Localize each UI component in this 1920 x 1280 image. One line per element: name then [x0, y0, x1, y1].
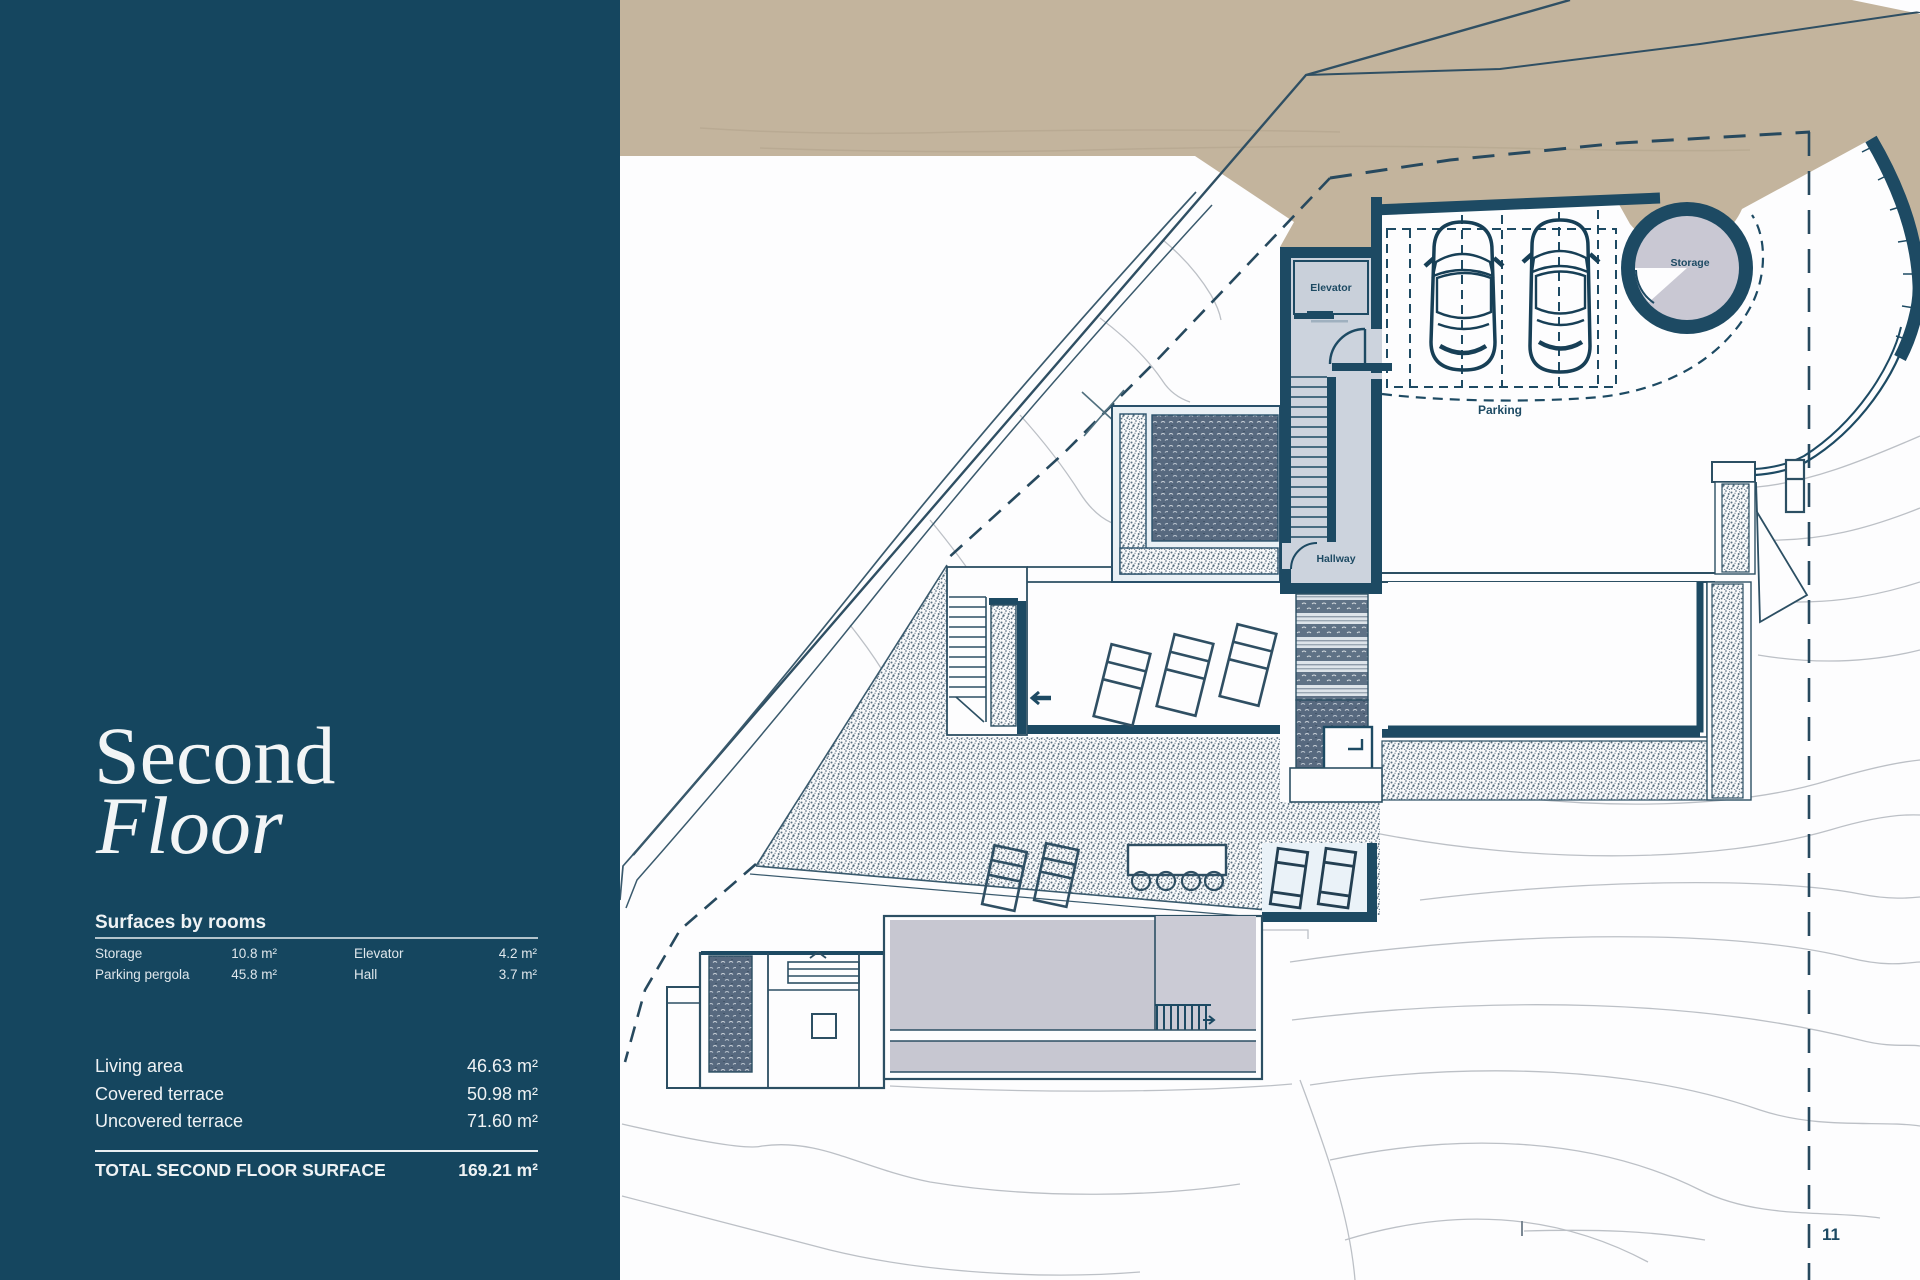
svg-text:11: 11	[1822, 1225, 1840, 1244]
svg-text:Parking: Parking	[1478, 403, 1522, 417]
svg-text:Elevator: Elevator	[354, 946, 404, 961]
svg-text:71.60 m²: 71.60 m²	[467, 1111, 538, 1131]
svg-text:Storage: Storage	[1670, 257, 1709, 269]
svg-text:Elevator: Elevator	[1310, 282, 1351, 294]
svg-text:10.8 m²: 10.8 m²	[231, 946, 277, 961]
svg-text:Parking pergola: Parking pergola	[95, 967, 190, 982]
svg-text:3.7 m²: 3.7 m²	[499, 967, 538, 982]
svg-text:Hallway: Hallway	[1316, 553, 1355, 565]
svg-text:Living area: Living area	[95, 1056, 184, 1076]
svg-text:Uncovered terrace: Uncovered terrace	[95, 1111, 243, 1131]
svg-text:46.63 m²: 46.63 m²	[467, 1056, 538, 1076]
svg-text:45.8 m²: 45.8 m²	[231, 967, 277, 982]
svg-text:4.2 m²: 4.2 m²	[499, 946, 538, 961]
svg-text:Hall: Hall	[354, 967, 377, 982]
svg-text:50.98 m²: 50.98 m²	[467, 1084, 538, 1104]
svg-text:169.21 m²: 169.21 m²	[458, 1160, 538, 1180]
svg-text:Covered terrace: Covered terrace	[95, 1084, 224, 1104]
svg-text:TOTAL SECOND FLOOR SURFACE: TOTAL SECOND FLOOR SURFACE	[95, 1160, 386, 1180]
svg-text:Surfaces by rooms: Surfaces by rooms	[95, 912, 266, 933]
svg-text:Floor: Floor	[95, 780, 284, 871]
svg-text:Storage: Storage	[95, 946, 142, 961]
